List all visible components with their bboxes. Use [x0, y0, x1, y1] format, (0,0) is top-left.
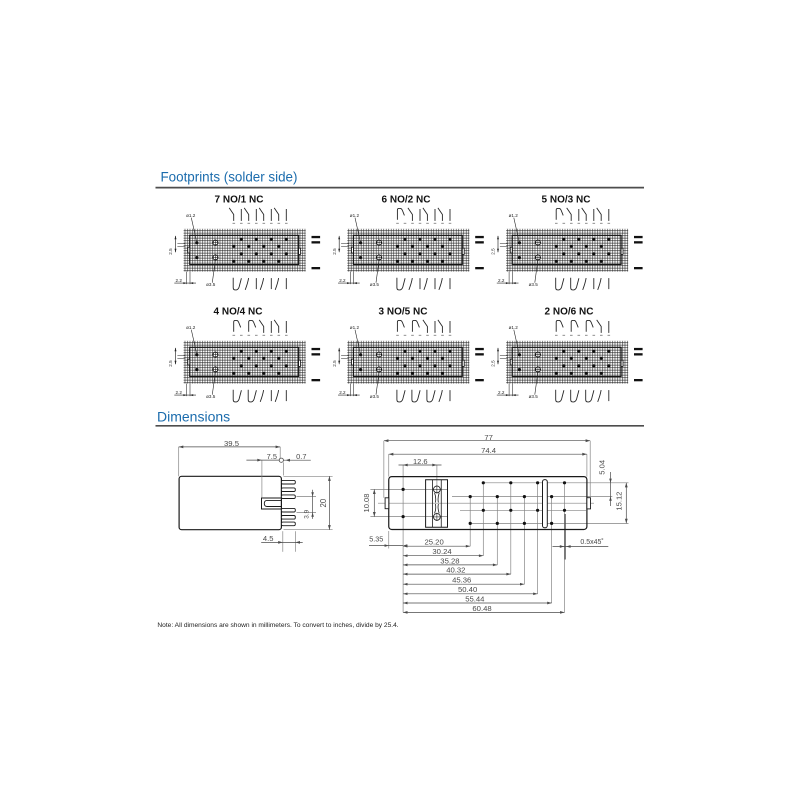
- svg-text:2.5: 2.5: [168, 248, 173, 255]
- svg-text:0.5x45˚: 0.5x45˚: [580, 538, 603, 546]
- svg-text:2.2: 2.2: [339, 390, 346, 395]
- svg-text:0.7: 0.7: [296, 452, 306, 461]
- svg-text:ø3.5: ø3.5: [370, 394, 380, 399]
- svg-text:5.04: 5.04: [598, 460, 607, 475]
- svg-text:ø1.2: ø1.2: [350, 213, 360, 218]
- svg-text:ø3.5: ø3.5: [529, 282, 539, 287]
- svg-text:10.08: 10.08: [362, 493, 371, 512]
- svg-text:ø3.5: ø3.5: [206, 282, 216, 287]
- svg-text:ø3.5: ø3.5: [370, 282, 380, 287]
- svg-text:2.2: 2.2: [176, 390, 183, 395]
- svg-text:45.36: 45.36: [452, 576, 471, 585]
- svg-text:Footprints (solder side): Footprints (solder side): [161, 170, 298, 185]
- svg-text:2.5: 2.5: [491, 360, 496, 367]
- svg-text:ø3.5: ø3.5: [206, 394, 216, 399]
- svg-text:2.5: 2.5: [332, 248, 337, 255]
- svg-text:60.48: 60.48: [472, 604, 491, 613]
- svg-text:77: 77: [484, 433, 493, 442]
- svg-text:55.44: 55.44: [465, 594, 485, 603]
- svg-text:25.20: 25.20: [425, 538, 444, 547]
- svg-text:39.5: 39.5: [224, 439, 239, 448]
- svg-text:2.5: 2.5: [332, 360, 337, 367]
- svg-text:7 NO/1 NC: 7 NO/1 NC: [215, 195, 264, 206]
- svg-text:4.5: 4.5: [263, 534, 274, 543]
- svg-text:35.28: 35.28: [440, 556, 459, 565]
- svg-text:5.35: 5.35: [369, 534, 383, 543]
- svg-text:7.5: 7.5: [267, 452, 277, 461]
- svg-text:6 NO/2 NC: 6 NO/2 NC: [382, 195, 431, 206]
- svg-text:ø1.2: ø1.2: [186, 213, 196, 218]
- svg-text:74.4: 74.4: [481, 446, 497, 455]
- svg-text:ø1.2: ø1.2: [350, 325, 360, 330]
- svg-text:2.2: 2.2: [339, 278, 346, 283]
- svg-text:Dimensions: Dimensions: [157, 408, 230, 424]
- svg-text:3 NO/5 NC: 3 NO/5 NC: [379, 307, 428, 318]
- svg-text:ø1.2: ø1.2: [509, 213, 519, 218]
- svg-text:2.2: 2.2: [498, 390, 505, 395]
- svg-text:5 NO/3 NC: 5 NO/3 NC: [542, 195, 591, 206]
- svg-text:2.5: 2.5: [168, 360, 173, 367]
- svg-text:3.9: 3.9: [303, 509, 310, 518]
- svg-text:12.6: 12.6: [413, 457, 428, 466]
- svg-text:ø1.2: ø1.2: [509, 325, 519, 330]
- svg-text:15.12: 15.12: [615, 492, 624, 511]
- svg-text:50.40: 50.40: [458, 585, 477, 594]
- svg-text:Note: All dimensions are shown: Note: All dimensions are shown in millim…: [157, 622, 398, 629]
- svg-text:ø3.5: ø3.5: [529, 394, 539, 399]
- svg-text:2.2: 2.2: [176, 278, 183, 283]
- svg-text:2.5: 2.5: [491, 248, 496, 255]
- svg-text:4 NO/4 NC: 4 NO/4 NC: [214, 307, 263, 318]
- svg-text:2.2: 2.2: [498, 278, 505, 283]
- svg-text:40.32: 40.32: [446, 566, 465, 575]
- svg-text:ø1.2: ø1.2: [186, 325, 196, 330]
- svg-text:2 NO/6 NC: 2 NO/6 NC: [545, 307, 594, 318]
- svg-text:20: 20: [319, 498, 328, 507]
- svg-text:30.24: 30.24: [432, 547, 452, 556]
